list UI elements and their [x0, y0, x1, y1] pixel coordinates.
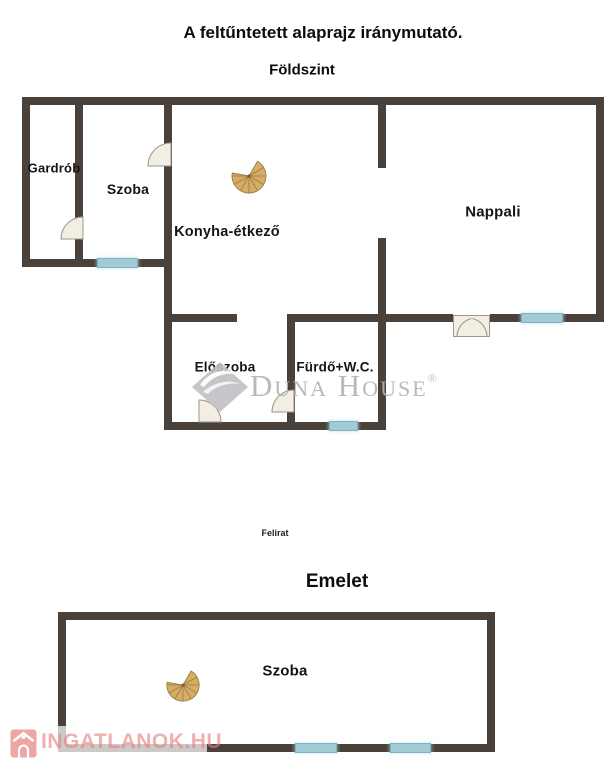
duna-house-wordmark: Duna House® [250, 368, 437, 404]
room-label-eloszoba: Előszoba [195, 360, 256, 375]
duna-house-name: Duna House [250, 368, 428, 403]
ground-floor-title: Földszint [269, 62, 335, 79]
window-upper-2 [390, 743, 431, 753]
room-label-upper-szoba: Szoba [262, 663, 307, 680]
room-label-nappali: Nappali [465, 204, 521, 221]
wall-eloszoba-top [164, 314, 237, 322]
wall-szoba-divider [164, 97, 172, 430]
wall-gardrob-divider [75, 97, 83, 267]
window-nappali [521, 313, 563, 323]
upper-floor-title: Emelet [306, 571, 368, 593]
room-label-gardrob: Gardrób [28, 161, 81, 176]
disclaimer-text: A feltűntetett alaprajz iránymutató. [184, 23, 463, 43]
window-upper-1 [295, 743, 337, 753]
window-szoba [97, 258, 138, 268]
door-french-nappali [454, 316, 490, 337]
ingatlanok-wordmark: INGATLANOK.HU [41, 730, 222, 754]
spiral-staircase-icon [232, 161, 266, 193]
room-label-konyha: Konyha-étkező [174, 224, 280, 240]
caption-felirat: Felirat [261, 528, 288, 538]
wall-top [22, 97, 604, 105]
room-label-szoba: Szoba [107, 181, 149, 197]
wall-left [22, 97, 30, 267]
window-furdo [329, 421, 358, 431]
door-entrance [199, 400, 221, 422]
registered-symbol: ® [428, 371, 437, 385]
wall-furdo-top [287, 314, 453, 322]
floorplan-page: A feltűntetett alaprajz iránymutató. Föl… [0, 0, 616, 768]
wall-konyha-nappali-upper [378, 97, 386, 168]
wall-right [596, 97, 604, 322]
